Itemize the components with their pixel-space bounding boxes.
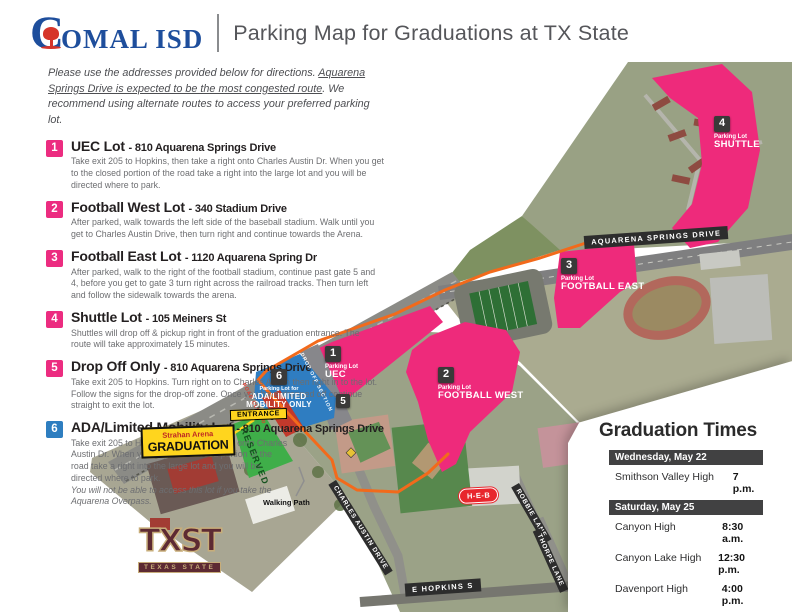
- badge-5: 5: [46, 360, 63, 377]
- school-name: Canyon Lake High: [615, 552, 718, 564]
- street-label-robbie: ROBBIE LANE: [511, 483, 551, 544]
- school-name: Smithson Valley High: [615, 471, 733, 483]
- header: C OMAL ISD Parking Map for Graduations a…: [30, 8, 629, 58]
- lot-title: Football West Lot - 340 Stadium Drive: [71, 200, 376, 216]
- ceremony-time: 7 p.m.: [733, 471, 763, 495]
- marker-badge-4: 4: [714, 116, 730, 132]
- lot-desc: Take exit 205 to Hopkins, then take a ri…: [71, 156, 384, 191]
- lot-address: 340 Stadium Drive: [195, 203, 287, 215]
- lot-note: You will not be able to access this lot …: [71, 485, 272, 507]
- table-row: Davenport High 4:00 p.m.: [609, 579, 763, 610]
- lot-address: 810 Aquarena Springs Drive: [243, 423, 384, 435]
- marker-football-east: 3 Parking Lot FOOTBALL EAST: [561, 258, 644, 292]
- parking-map-flyer: C OMAL ISD Parking Map for Graduations a…: [0, 0, 792, 612]
- graduation-times-table: Wednesday, May 22 Smithson Valley High 7…: [609, 448, 763, 612]
- marker-badge-1: 1: [325, 346, 341, 362]
- marker-badge-3: 3: [561, 258, 577, 274]
- date-header: Saturday, May 25: [609, 500, 763, 515]
- lot-title: Shuttle Lot - 105 Meiners St: [71, 310, 361, 326]
- graduation-times-panel: Graduation Times Wednesday, May 22 Smith…: [568, 356, 792, 612]
- list-item-shuttle: 4 Shuttle Lot - 105 Meiners St Shuttles …: [46, 310, 384, 351]
- list-item-uec: 1 UEC Lot - 810 Aquarena Springs Drive T…: [46, 139, 384, 192]
- logo-text: OMAL ISD: [61, 24, 203, 55]
- dash: - 340 Stadium Drive: [188, 203, 286, 215]
- terrain-fields-north: [440, 216, 560, 288]
- school-name: Davenport High: [615, 583, 722, 595]
- lot-name: Shuttle Lot: [71, 309, 142, 325]
- lot-name: UEC Lot: [71, 138, 125, 154]
- lot-address: 1120 Aquarena Spring Dr: [191, 252, 317, 264]
- entrance-label: ENTRANCE: [230, 408, 287, 421]
- lot-address: 105 Meiners St: [152, 313, 226, 325]
- table-row: Smithson Valley High 7 p.m.: [609, 467, 763, 498]
- marker-5: 5: [336, 394, 350, 410]
- badge-6: 6: [46, 421, 63, 438]
- lot-desc: After parked, walk to the right of the f…: [71, 267, 384, 302]
- lot-shuttle-area: [652, 64, 760, 248]
- list-item-football-west: 2 Football West Lot - 340 Stadium Drive …: [46, 200, 384, 241]
- marker-uec: 1 Parking Lot UEC: [325, 346, 358, 380]
- date-header: Wednesday, May 22: [609, 450, 763, 465]
- dash: - 105 Meiners St: [146, 313, 227, 325]
- ceremony-time: 4:00 p.m.: [722, 583, 763, 607]
- lot-desc: Shuttles will drop off & pickup right in…: [71, 328, 361, 351]
- heb-logo: H-E-B: [459, 487, 499, 504]
- street-label-aquarena: AQUARENA SPRINGS DRIVE: [584, 226, 729, 249]
- table-row: Canyon High 8:30 a.m.: [609, 517, 763, 548]
- intro-text: Please use the addresses provided below …: [48, 66, 384, 129]
- lot-desc: After parked, walk towards the left side…: [71, 217, 376, 240]
- lot-title: Football East Lot - 1120 Aquarena Spring…: [71, 249, 384, 265]
- texas-state-logo: TXST TEXAS STATE: [138, 528, 221, 574]
- lot-name: Drop Off Only: [71, 358, 160, 374]
- badge-3: 3: [46, 250, 63, 267]
- building-east: [710, 274, 772, 344]
- graduation-times-title: Graduation Times: [599, 420, 757, 442]
- lot-name: Football West Lot: [71, 199, 185, 215]
- badge-1: 1: [46, 140, 63, 157]
- lot-name: Football East Lot: [71, 248, 181, 264]
- graduation-venue-label: Strahan Arena GRADUATION: [140, 424, 235, 458]
- comal-isd-logo: C OMAL ISD: [30, 10, 203, 57]
- street-label-hopkins: E HOPKINS S: [405, 578, 481, 596]
- badge-2: 2: [46, 201, 63, 218]
- dash: - 810 Aquarena Springs Drive: [129, 142, 276, 154]
- lot-address: 810 Aquarena Springs Drive: [135, 142, 276, 154]
- dash: - 1120 Aquarena Spring Dr: [185, 252, 317, 264]
- school-name: Canyon High: [615, 521, 722, 533]
- table-row: Canyon Lake High 12:30 p.m.: [609, 548, 763, 579]
- terrain-apartments: [522, 62, 792, 252]
- marker-football-west: 2 Parking Lot FOOTBALL WEST: [438, 367, 524, 401]
- oak-tree-icon: [43, 27, 59, 40]
- marker-shuttle: 4 Parking Lot SHUTTLE: [714, 116, 760, 150]
- list-item-football-east: 3 Football East Lot - 1120 Aquarena Spri…: [46, 249, 384, 302]
- dash: - 810 Aquarena Springs Drive: [236, 423, 383, 435]
- intro-part1: Please use the addresses provided below …: [48, 67, 318, 79]
- badge-4: 4: [46, 311, 63, 328]
- page-title: Parking Map for Graduations at TX State: [233, 21, 629, 46]
- ceremony-time: 12:30 p.m.: [718, 552, 763, 576]
- lot-title: UEC Lot - 810 Aquarena Springs Drive: [71, 139, 384, 155]
- marker-badge-6: 6: [271, 369, 287, 385]
- ceremony-time: 8:30 a.m.: [722, 521, 763, 545]
- walking-path-label: Walking Path: [263, 498, 310, 507]
- header-divider: [217, 14, 219, 52]
- marker-badge-2: 2: [438, 367, 454, 383]
